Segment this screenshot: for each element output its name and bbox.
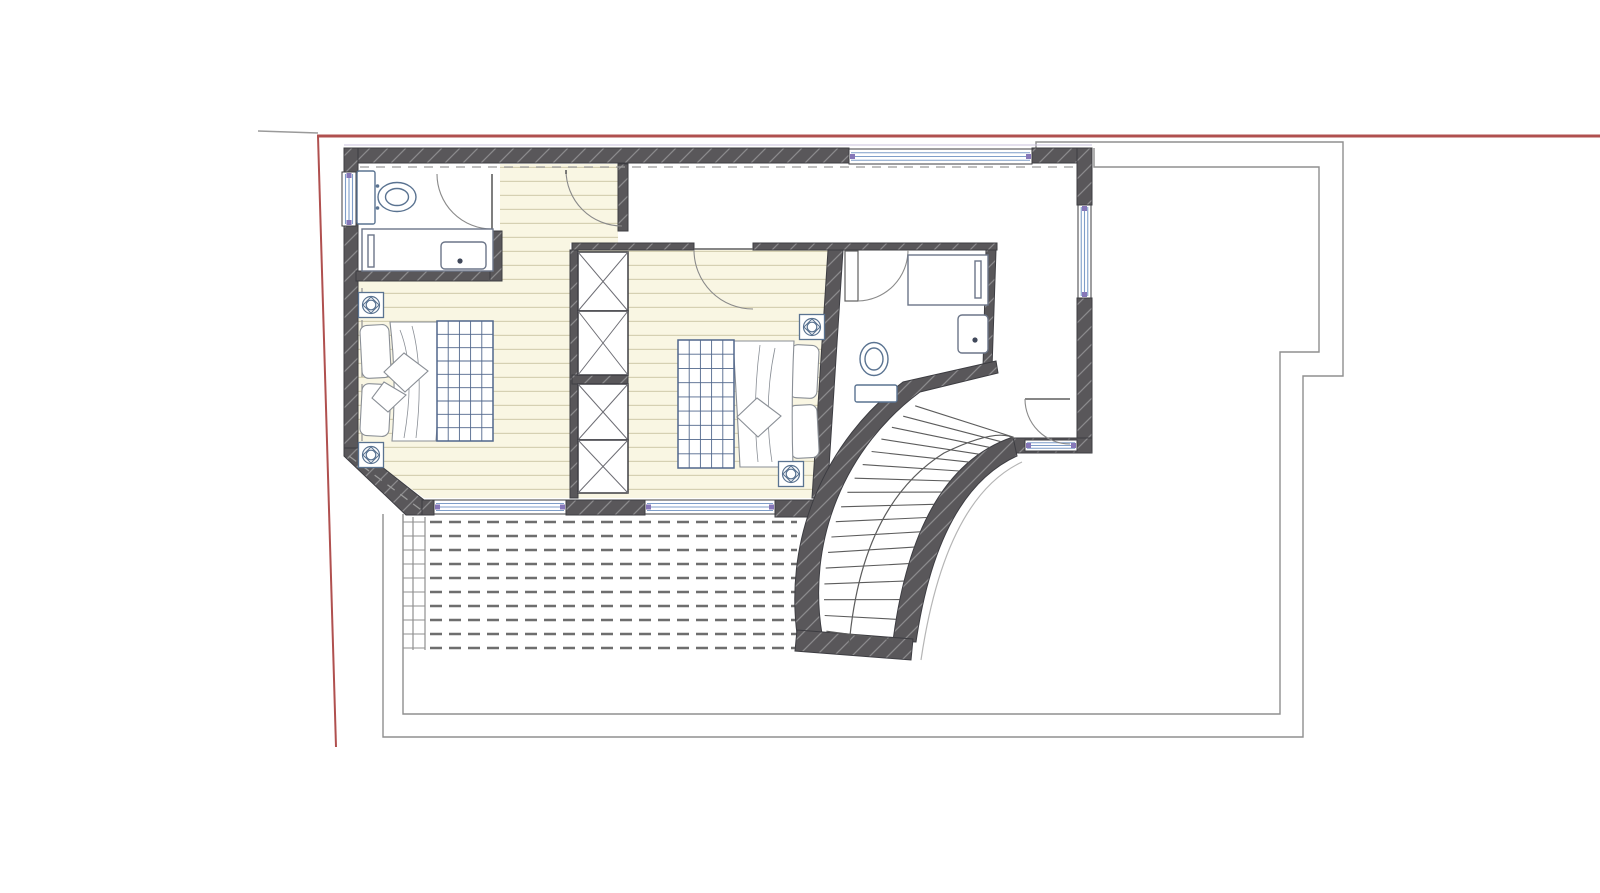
stair-tread xyxy=(892,427,990,447)
window-cap xyxy=(850,154,855,159)
pillow xyxy=(789,404,820,458)
wardrobe-cell xyxy=(578,440,628,493)
toilet-symbol xyxy=(357,171,416,224)
terrace-drainage-channel xyxy=(413,517,425,650)
window-bathroom-1 xyxy=(342,172,356,226)
property-boundary-left xyxy=(318,136,336,747)
stair-tread xyxy=(841,504,934,507)
window-bedroom-1 xyxy=(434,500,566,514)
blanket-outline xyxy=(678,340,734,468)
shower-vanity-symbol xyxy=(908,255,988,305)
washbasin-symbol xyxy=(441,242,486,269)
window-cap xyxy=(1082,292,1087,297)
window-right xyxy=(1078,205,1091,298)
wall-wardrobe-jog xyxy=(572,375,628,384)
wardrobe-cell xyxy=(578,252,628,311)
wardrobe-cell xyxy=(578,311,628,375)
stair-tread xyxy=(863,465,960,471)
door-bathroom-2 xyxy=(845,250,908,301)
stair-tread xyxy=(825,616,896,620)
blanket-outline xyxy=(437,321,493,441)
bathroom-1-fixtures xyxy=(357,171,493,271)
window-cap xyxy=(646,505,651,510)
washbasin-symbol xyxy=(958,315,988,353)
window-cap xyxy=(1026,154,1031,159)
window-cap xyxy=(347,173,352,178)
wall-bottom-pier xyxy=(566,500,645,515)
door-landing xyxy=(1025,399,1070,444)
stair-tread xyxy=(824,581,904,584)
window-cap xyxy=(1071,443,1076,448)
spotlight-symbol xyxy=(800,315,825,340)
door-bathroom-1 xyxy=(437,174,492,229)
wall-bedroom2-top-b xyxy=(753,243,997,250)
built-in-wardrobe xyxy=(578,252,628,493)
wardrobe-cell xyxy=(578,384,628,440)
wall-corridor-stub xyxy=(618,164,628,231)
wall-top xyxy=(344,148,849,163)
wall-bottom-a xyxy=(422,500,434,515)
wall-bathroom1-bottom xyxy=(356,271,502,281)
floor-plan-page xyxy=(0,0,1600,893)
stair-tread xyxy=(828,547,914,552)
window-cap xyxy=(1082,206,1087,211)
stair-tread xyxy=(881,439,979,454)
window-cap xyxy=(560,505,565,510)
stair-tread xyxy=(872,452,969,463)
wall-bedroom2-left xyxy=(570,250,578,498)
wall-bedroom2-top-a xyxy=(572,243,694,250)
floor-plan-canvas xyxy=(0,0,1600,893)
spotlight-symbol xyxy=(359,293,384,318)
window-bedroom-2 xyxy=(645,500,775,514)
stair-tread xyxy=(855,478,951,481)
spotlight-symbol xyxy=(779,462,804,487)
spotlight-symbol xyxy=(359,443,384,468)
boundary-gray-segment xyxy=(258,131,318,133)
window-cap xyxy=(769,505,774,510)
window-top xyxy=(849,149,1032,164)
toilet-symbol xyxy=(855,343,897,403)
terrace-deck xyxy=(403,522,797,648)
stair-tread xyxy=(826,564,909,569)
window-cap xyxy=(347,220,352,225)
checkered-blanket xyxy=(437,321,493,441)
wall-right-upper xyxy=(1077,148,1092,205)
window-cap xyxy=(1026,443,1031,448)
checkered-blanket xyxy=(678,340,734,468)
wall-right-lower xyxy=(1077,298,1092,438)
window-landing xyxy=(1025,440,1077,451)
window-cap xyxy=(435,505,440,510)
